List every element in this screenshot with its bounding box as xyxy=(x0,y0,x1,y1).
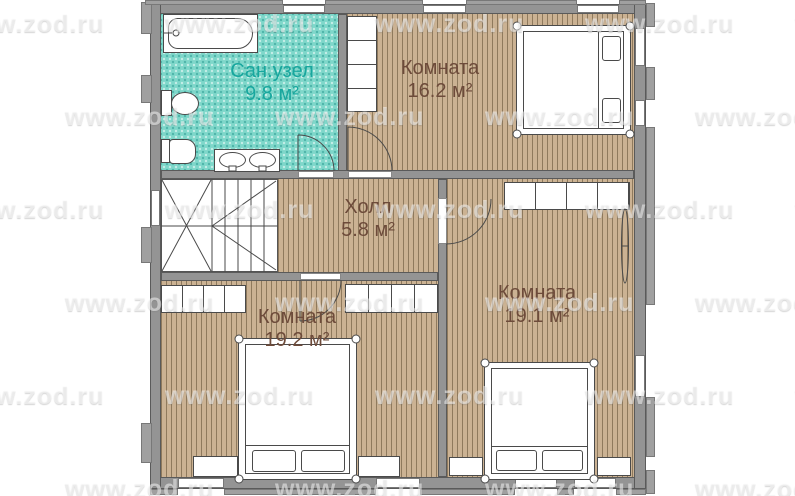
bedroom-16-2-door-opening xyxy=(348,171,392,178)
wall-bump xyxy=(557,489,574,495)
wall-bump xyxy=(141,2,152,34)
window xyxy=(283,5,325,13)
bedroom-19-2-door-opening xyxy=(300,273,341,280)
wardrobe xyxy=(504,182,630,210)
watermark-text: www.zod.ru xyxy=(695,289,795,318)
bedroom-19-1-label: Комната 19.1 м² xyxy=(457,282,617,328)
window xyxy=(151,190,160,226)
nightstand xyxy=(597,457,631,476)
wall-bump xyxy=(141,227,152,263)
pillow xyxy=(252,450,296,472)
watermark-text: www.zod.ru xyxy=(695,103,795,132)
watermark-text: www.zod.ru xyxy=(0,196,104,225)
wall-bump xyxy=(141,75,152,103)
nightstand xyxy=(193,456,238,477)
wall-bump xyxy=(466,0,577,5)
window xyxy=(577,5,619,13)
bathroom-door-opening xyxy=(298,171,334,178)
bidet-bowl xyxy=(169,139,196,164)
window xyxy=(635,28,645,66)
top-exterior-wall xyxy=(150,4,646,14)
room-name: Холл xyxy=(298,196,438,219)
bedroom-16-2-label: Комната 16.2 м² xyxy=(360,57,520,103)
staircase-area xyxy=(161,179,278,272)
window xyxy=(376,478,420,488)
pillow xyxy=(496,450,537,471)
pillow xyxy=(602,98,621,123)
pillow xyxy=(301,450,345,472)
room-area: 9.8 м² xyxy=(192,83,352,106)
wall-bump xyxy=(145,0,283,5)
room-area: 19.1 м² xyxy=(457,305,617,328)
wall-bump xyxy=(646,127,655,305)
nightstand xyxy=(358,456,400,477)
room-name: Сан.узел xyxy=(192,60,352,83)
bathroom-label: Сан.узел 9.8 м² xyxy=(192,60,352,106)
window xyxy=(178,478,224,488)
bedroom-19-1-door-leaf xyxy=(438,198,447,244)
wall-bump xyxy=(646,470,655,494)
watermark-text: www.zod.ru xyxy=(0,382,104,411)
watermark-text: www.zod.ru xyxy=(695,475,795,496)
room-name: Комната xyxy=(360,57,520,80)
pillow xyxy=(602,36,621,61)
pillow xyxy=(542,450,583,471)
right-exterior-wall xyxy=(634,4,646,489)
window xyxy=(635,355,645,397)
wall-bump xyxy=(619,0,646,5)
wall-bump xyxy=(150,489,178,495)
room-name: Комната xyxy=(457,282,617,305)
wall-bump xyxy=(325,0,423,5)
room-name: Комната xyxy=(217,306,377,329)
sink-basin xyxy=(219,152,246,168)
floor-plan: Сан.узел 9.8 м² Комната 16.2 м² Холл 5.8… xyxy=(0,0,795,496)
nightstand xyxy=(449,457,483,476)
wall-bump xyxy=(646,67,655,100)
sink-basin xyxy=(249,152,276,168)
bathtub-basin xyxy=(168,18,253,49)
wall-bump xyxy=(646,397,655,457)
wall-bump xyxy=(420,489,515,495)
wall-bump xyxy=(616,489,646,495)
wall-bump xyxy=(224,489,376,495)
room-area: 16.2 м² xyxy=(360,80,520,103)
blanket-line xyxy=(491,446,588,447)
room-area: 19.2 м² xyxy=(217,329,377,352)
wall-bump xyxy=(141,423,152,463)
room-area: 5.8 м² xyxy=(298,219,438,242)
blanket-line xyxy=(598,31,599,129)
blanket-line xyxy=(245,445,350,446)
watermark-text: www.zod.ru xyxy=(0,10,104,39)
window xyxy=(635,100,645,126)
window xyxy=(423,5,466,13)
hall-label: Холл 5.8 м² xyxy=(298,196,438,242)
bedroom-19-2-label: Комната 19.2 м² xyxy=(217,306,377,352)
wall-bump xyxy=(646,3,655,27)
